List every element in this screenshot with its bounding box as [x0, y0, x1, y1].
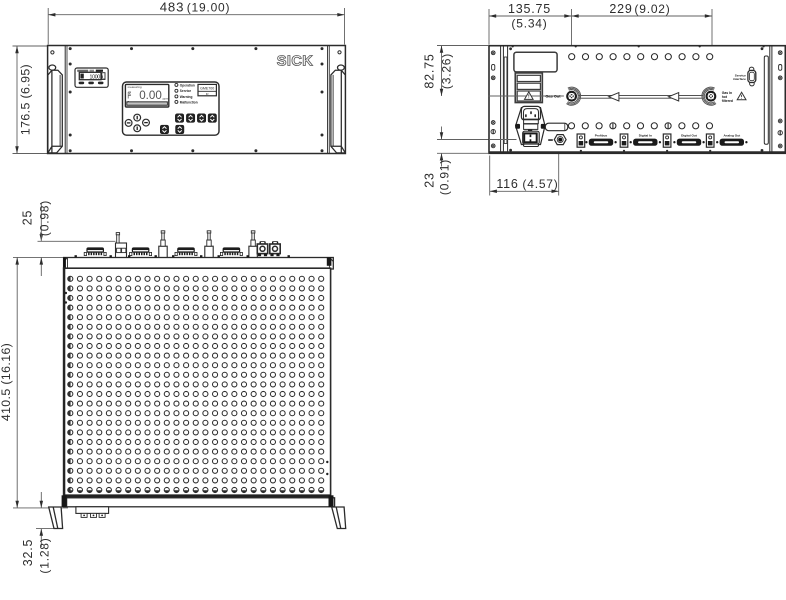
- svg-text:410.5 (16.16): 410.5 (16.16): [0, 343, 13, 421]
- svg-text:116: 116: [496, 177, 518, 191]
- svg-text:Analog Out: Analog Out: [723, 134, 740, 138]
- svg-text:(5.34): (5.34): [511, 17, 547, 31]
- svg-text:Profibus: Profibus: [595, 134, 608, 138]
- svg-text:(9.02): (9.02): [634, 2, 670, 16]
- svg-text:Digital In: Digital In: [639, 134, 652, 138]
- svg-text:Warning: Warning: [180, 95, 193, 99]
- svg-text:(4.57): (4.57): [522, 177, 558, 191]
- svg-text:Operation: Operation: [180, 83, 195, 87]
- svg-text:32.5: 32.5: [21, 539, 35, 567]
- svg-text:Digital Out: Digital Out: [681, 134, 697, 138]
- svg-text:filtered: filtered: [722, 99, 733, 103]
- svg-text:483: 483: [160, 0, 184, 15]
- svg-text:(3.26): (3.26): [440, 53, 454, 89]
- svg-text:135.75: 135.75: [508, 2, 551, 16]
- svg-text:(0.91): (0.91): [438, 159, 452, 195]
- svg-text:82.75: 82.75: [423, 53, 437, 88]
- svg-text:(0.98): (0.98): [37, 200, 51, 236]
- svg-text:23: 23: [423, 172, 437, 188]
- svg-text:0.00: 0.00: [139, 89, 162, 102]
- svg-text:25: 25: [21, 210, 35, 226]
- svg-text:1000: 1000: [90, 75, 101, 81]
- svg-text:Gas Out: Gas Out: [545, 94, 561, 99]
- svg-text:SICK: SICK: [277, 53, 314, 69]
- svg-text:IR: IR: [206, 92, 209, 96]
- svg-text:Service: Service: [180, 89, 192, 93]
- svg-text:176.5 (6.95): 176.5 (6.95): [19, 64, 33, 135]
- svg-text:GME700: GME700: [200, 87, 214, 91]
- svg-text:229: 229: [609, 2, 632, 16]
- svg-text:ppm: ppm: [163, 97, 169, 101]
- svg-text:(19.00): (19.00): [187, 1, 231, 15]
- svg-text:interface: interface: [733, 77, 746, 81]
- svg-text:Malfunction: Malfunction: [180, 100, 198, 104]
- svg-text:L: L: [102, 74, 105, 79]
- svg-text:(1.28): (1.28): [38, 537, 52, 573]
